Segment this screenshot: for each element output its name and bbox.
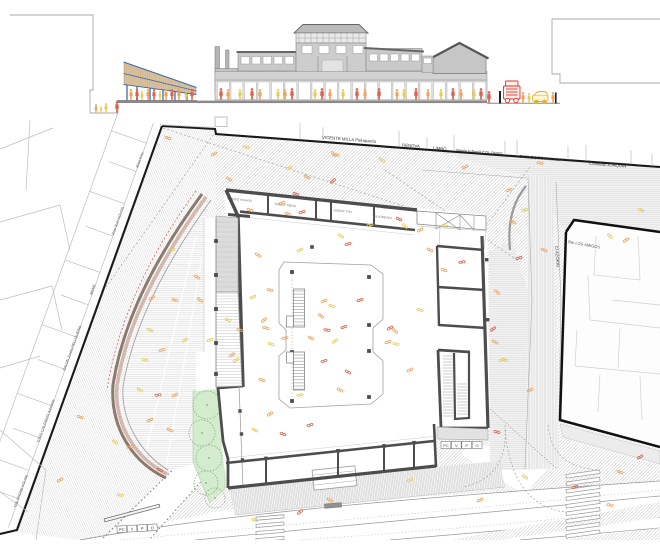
svg-text:O: O [151,525,154,530]
svg-text:Mota Irma: Mota Irma [135,152,144,169]
svg-text:PC: PC [443,443,449,448]
svg-text:PC: PC [119,527,125,532]
svg-text:MEME: MEME [89,283,97,295]
svg-text:O: O [476,443,479,448]
svg-text:Rosi RoH HOYOS: Rosi RoH HOYOS [111,206,125,236]
svg-text:V: V [455,443,458,448]
svg-text:P: P [465,443,468,448]
